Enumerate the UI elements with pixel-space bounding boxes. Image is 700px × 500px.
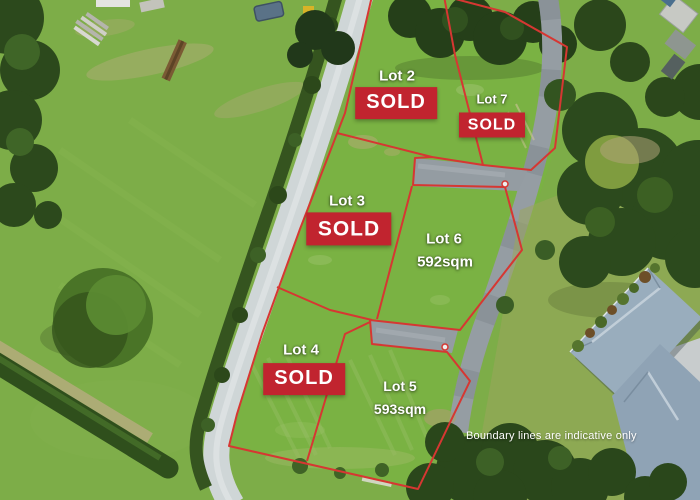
lot-2-label: Lot 2 bbox=[379, 68, 415, 85]
lot-4-label: Lot 4 bbox=[283, 342, 319, 359]
lot-3-label: Lot 3 bbox=[329, 193, 365, 210]
lot-6-area: 592sqm bbox=[417, 254, 473, 271]
lot-2-sold-badge: SOLD bbox=[355, 87, 437, 119]
lot-5-label: Lot 5 bbox=[383, 378, 416, 394]
lot-4-sold-badge: SOLD bbox=[263, 363, 345, 395]
aerial-scene bbox=[0, 0, 700, 500]
lot-5-area: 593sqm bbox=[374, 401, 426, 417]
lot-6-label: Lot 6 bbox=[426, 231, 462, 248]
lot-3-sold-badge: SOLD bbox=[306, 212, 391, 245]
lot-7-sold-badge: SOLD bbox=[459, 112, 525, 137]
boundary-disclaimer: Boundary lines are indicative only bbox=[466, 430, 637, 442]
lot-7-label: Lot 7 bbox=[476, 92, 507, 107]
subdivision-aerial-photo: Lot 2 SOLD Lot 7 SOLD Lot 3 SOLD Lot 6 5… bbox=[0, 0, 700, 500]
